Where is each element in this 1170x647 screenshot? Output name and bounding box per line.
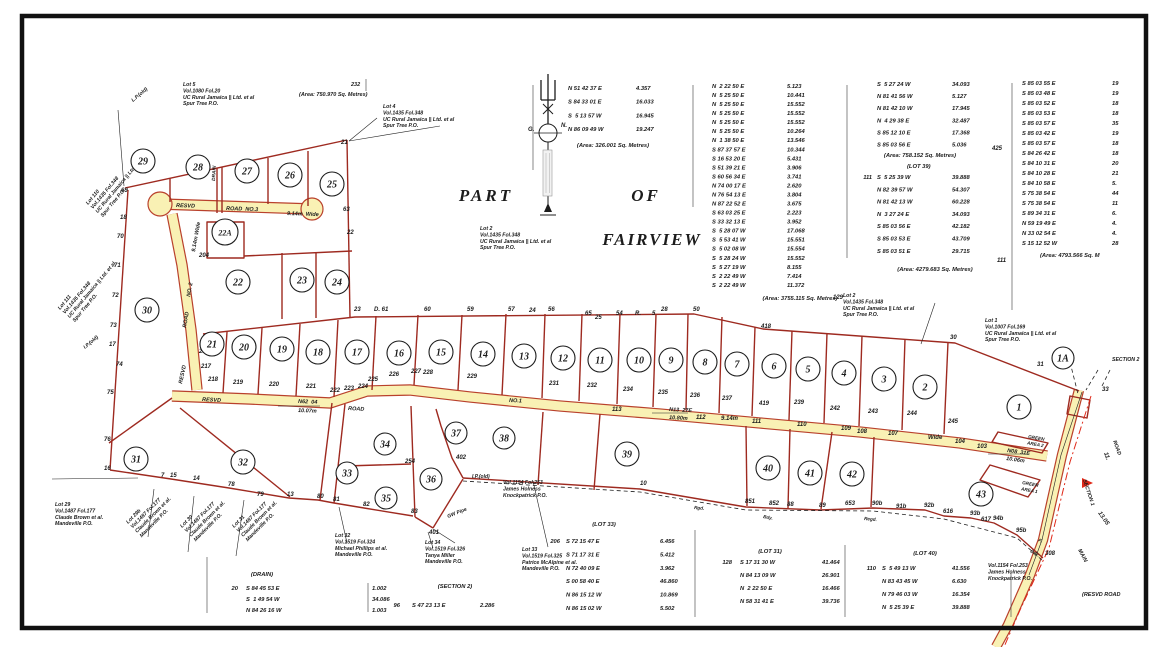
bearing-value: S 5 25 39 W bbox=[877, 175, 911, 181]
boundary-point-number: 235 bbox=[657, 390, 669, 396]
lot-circle-43: 43 bbox=[969, 482, 993, 506]
parcel-boundary-line bbox=[463, 478, 1043, 558]
bearing-value: S 51 39 21 E bbox=[712, 165, 747, 171]
bearing-table-traverse-b2: 111S 5 25 39 W39.888N 82 39 57 W54.307N … bbox=[863, 175, 973, 273]
boundary-point-number: 111 bbox=[997, 258, 1007, 264]
lot-number: 6 bbox=[772, 362, 777, 373]
lot-number: 1A bbox=[1057, 354, 1069, 365]
distance-value: 3.952 bbox=[787, 220, 802, 226]
table-title: (DRAIN) bbox=[251, 572, 273, 578]
distance-value: 17.068 bbox=[787, 229, 806, 235]
distance-value: 6. bbox=[1112, 211, 1117, 217]
boundary-point-number: 228 bbox=[422, 370, 434, 376]
north-arrow-icon bbox=[534, 74, 562, 215]
distance-value: 15.554 bbox=[787, 247, 806, 253]
bearing-value: N 5 25 50 E bbox=[712, 111, 745, 117]
distance-value: 16.033 bbox=[636, 100, 655, 106]
parcel-boundary-line bbox=[347, 140, 350, 318]
lot-circle-28: 28 bbox=[186, 155, 210, 179]
bearing-value: S 5 28 07 W bbox=[712, 229, 746, 235]
distance-value: 2.286 bbox=[479, 603, 495, 609]
boundary-point-number: 852 bbox=[769, 501, 780, 507]
distance-value: 29.715 bbox=[951, 249, 971, 255]
boundary-point-number: 104 bbox=[955, 439, 966, 445]
parcel-boundary-line bbox=[109, 398, 172, 443]
lot-circle-22: 22 bbox=[226, 270, 250, 294]
bearing-value: S 00 58 40 E bbox=[566, 579, 601, 585]
bearing-value: N 3 27 24 E bbox=[877, 212, 910, 218]
lot-circle-17: 17 bbox=[345, 340, 369, 364]
lot-circle-39: 39 bbox=[615, 442, 639, 466]
boundary-point-number: 217 bbox=[200, 364, 212, 370]
owner-label-line: Vol.1154 Fol.253 bbox=[503, 480, 543, 486]
lot-number: 36 bbox=[425, 475, 436, 486]
owner-label-line: Vol.1519 Fol.324 bbox=[335, 539, 375, 545]
lot-circle-35: 35 bbox=[375, 487, 397, 509]
lot-number: 9 bbox=[669, 356, 674, 367]
boundary-point-number: 129 bbox=[833, 295, 844, 301]
boundary-point-number: 234 bbox=[622, 387, 634, 393]
lot-number: 14 bbox=[478, 350, 488, 361]
owner-label-line: Knockpatrick P.O. bbox=[503, 493, 547, 499]
owner-label-line: Lot 33 bbox=[522, 547, 537, 553]
owner-label-holness-bottom: Vol.1154 Fol.253James HolnessKnockpatric… bbox=[988, 563, 1032, 582]
lot-circle-19: 19 bbox=[270, 337, 294, 361]
lot-circle-15: 15 bbox=[429, 340, 453, 364]
lot-number: 41 bbox=[804, 469, 815, 480]
owner-label-lot2-right: Lot 2Vol.1435 Fol.348UC Rural Jamaica ||… bbox=[843, 293, 915, 318]
lot-number: 15 bbox=[436, 348, 446, 359]
owner-label-green-area-2: GREENAREA 2 bbox=[1026, 434, 1046, 448]
lot-number: 18 bbox=[313, 348, 323, 359]
parcel-boundary-line bbox=[686, 314, 688, 410]
road-name-label: ROAD NO.3 bbox=[226, 206, 258, 213]
lot-number: 17 bbox=[352, 348, 363, 359]
distance-value: 19 bbox=[1112, 131, 1119, 137]
lot-circle-7: 7 bbox=[725, 352, 749, 376]
owner-label-line: Spur Tree P.O. bbox=[985, 337, 1020, 343]
boundary-point-number: 15 bbox=[170, 473, 177, 479]
bearing-table-traverse-c: S 85 03 55 E19S 85 03 48 E19S 85 03 52 E… bbox=[1022, 81, 1119, 259]
bearing-value: S 16 53 20 E bbox=[712, 156, 747, 162]
table-title: (LOT 31) bbox=[758, 549, 782, 555]
bearing-value: S 85 03 56 E bbox=[877, 224, 912, 230]
distance-value: 10.264 bbox=[787, 129, 806, 135]
map-annotation-label: (LOT 39) bbox=[907, 164, 931, 170]
owner-label-line: Vol.1154 Fol.253 bbox=[988, 563, 1028, 569]
red-dimension-label: 11. bbox=[1102, 452, 1110, 462]
boundary-point-number: 653 bbox=[845, 501, 856, 507]
road-name-label: 9.14m Wide bbox=[287, 211, 319, 218]
bearing-value: S 5 27 19 W bbox=[712, 265, 746, 271]
bearing-value: S 87 37 57 E bbox=[712, 147, 747, 153]
lot-circle-38: 38 bbox=[493, 427, 515, 449]
boundary-point-number: 79 bbox=[257, 492, 264, 498]
bearing-value: S 75 38 54 E bbox=[1022, 201, 1057, 207]
lot-number: 35 bbox=[380, 494, 391, 505]
owner-label-lot30-diag: Lot 30Vol.1487 Fol.177Claude Brown et al… bbox=[179, 491, 231, 543]
distance-value: 4. bbox=[1111, 221, 1117, 227]
table-title: (LOT 33) bbox=[592, 522, 616, 528]
lot-number: 3 bbox=[881, 375, 887, 386]
distance-value: 5.431 bbox=[787, 156, 802, 162]
lot-circle-22A: 22A bbox=[212, 219, 238, 245]
boundary-point-number: 239 bbox=[793, 400, 805, 406]
boundary-point-number: 107 bbox=[888, 431, 899, 437]
bearing-value: S 85 03 57 E bbox=[1022, 121, 1057, 127]
parcel-boundary-line bbox=[110, 190, 128, 470]
parcel-boundary-line bbox=[752, 327, 755, 416]
lot-circle-24: 24 bbox=[325, 270, 349, 294]
map-annotation-label: 232 bbox=[350, 82, 360, 88]
road-name-label: RESVD bbox=[202, 397, 221, 404]
owner-label-lot32-owner: Lot 32Vol.1519 Fol.324Michael Phillips e… bbox=[335, 533, 387, 558]
boundary-point-number: 69 bbox=[121, 188, 128, 194]
lot-circle-29: 29 bbox=[131, 149, 155, 173]
boundary-point-number: 70 bbox=[117, 234, 124, 240]
boundary-point-number: 219 bbox=[232, 380, 244, 386]
owner-label-line: Spur Tree P.O. bbox=[183, 101, 218, 107]
boundary-point-number: 617 bbox=[981, 517, 992, 523]
distance-value: 6.630 bbox=[952, 579, 967, 585]
bearing-value: N 5 25 50 E bbox=[712, 93, 745, 99]
distance-value: 5.127 bbox=[952, 94, 967, 100]
bearing-table-lot31: (LOT 31)128S 17 31 30 W41.464N 84 13 09 … bbox=[722, 549, 840, 605]
boundary-point-number: 60 bbox=[424, 307, 431, 313]
boundary-point-number: 95b bbox=[1016, 528, 1027, 534]
lot-circle-20: 20 bbox=[232, 335, 256, 359]
lot-number: 13 bbox=[519, 352, 529, 363]
boundary-point-number: 82 bbox=[363, 502, 370, 508]
map-annotation-label: MAIN bbox=[1076, 548, 1088, 564]
boundary-point-number: 92b bbox=[924, 503, 935, 509]
lot-circle-30: 30 bbox=[135, 298, 159, 322]
owner-label-line: James Holness bbox=[503, 486, 541, 492]
boundary-point-number: 71 bbox=[114, 263, 121, 269]
boundary-point-number: 93b bbox=[970, 511, 981, 517]
boundary-point-number: 221 bbox=[305, 384, 317, 390]
boundary-point-number: Wide bbox=[928, 435, 943, 441]
distance-value: 1.003 bbox=[372, 608, 387, 614]
bearing-value: N 59 19 49 E bbox=[1022, 221, 1057, 227]
bearing-value: N 81 42 10 W bbox=[877, 106, 913, 112]
lot-circle-3: 3 bbox=[872, 367, 896, 391]
map-annotation-label: SECTION 2 bbox=[1112, 357, 1139, 363]
boundary-point-number: 94b bbox=[993, 516, 1004, 522]
distance-value: 6.456 bbox=[660, 539, 675, 545]
owner-label-green-area-1: GREENAREA 1 bbox=[1020, 480, 1040, 494]
bearing-value: S 89 34 31 E bbox=[1022, 211, 1057, 217]
owner-label-line: Vol.1435 Fol.348 bbox=[383, 110, 423, 116]
distance-value: 16.354 bbox=[952, 592, 971, 598]
distance-value: 4. bbox=[1111, 231, 1117, 237]
lot-circle-33: 33 bbox=[336, 462, 358, 484]
owner-label-line: UC Rural Jamaica || Ltd. et al bbox=[843, 306, 915, 312]
owner-label-lot111: Lot 111Vol.1435 Fol.348UC Rural Jamaica … bbox=[57, 252, 122, 323]
parcel-boundary-line bbox=[902, 339, 905, 430]
boundary-point-number: 22 bbox=[346, 230, 354, 236]
registered-boundary-dashes bbox=[1086, 370, 1098, 390]
distance-value: 60.228 bbox=[952, 200, 971, 206]
parcel-boundary-line bbox=[125, 140, 347, 188]
grid-north-g-label: G. bbox=[528, 127, 535, 133]
lot-circle-25: 25 bbox=[320, 172, 344, 196]
boundary-point-number: 74 bbox=[116, 362, 123, 368]
bearing-value: S 85 03 57 E bbox=[1022, 141, 1057, 147]
owner-label-line: Vol.1007 Fol.169 bbox=[985, 324, 1025, 330]
lot-circle-40: 40 bbox=[756, 456, 780, 480]
owner-label-line: Lot 1 bbox=[985, 318, 998, 324]
survey-plan-sheet: N 51 42 37 E4.357S 84 33 01 E16.033S 5 1… bbox=[0, 0, 1170, 647]
boundary-point-number: 402 bbox=[455, 455, 467, 461]
lot-number: 43 bbox=[975, 490, 986, 501]
lot-circle-10: 10 bbox=[627, 348, 651, 372]
boundary-point-number: 78 bbox=[228, 482, 235, 488]
bearing-value: S 2 22 49 W bbox=[712, 274, 746, 280]
boundary-point-number: 232 bbox=[586, 383, 598, 389]
distance-value: 20 bbox=[1111, 161, 1119, 167]
distance-value: 28 bbox=[1111, 241, 1119, 247]
lot-circle-26: 26 bbox=[278, 163, 302, 187]
boundary-point-number: 231 bbox=[548, 381, 560, 387]
bearing-value: N 79 46 03 W bbox=[882, 592, 918, 598]
lot-circle-14: 14 bbox=[471, 342, 495, 366]
lot-number: 8 bbox=[703, 358, 708, 369]
road-surface bbox=[996, 390, 1079, 647]
distance-value: 15.551 bbox=[787, 238, 805, 244]
lot-number: 12 bbox=[558, 354, 568, 365]
table-title: (LOT 40) bbox=[913, 551, 937, 557]
road-name-label: 10.80m bbox=[669, 415, 688, 422]
bearing-value: S 17 31 30 W bbox=[740, 560, 776, 566]
bearing-table-lot40: (LOT 40)110S 5 49 13 W41.556N 83 43 45 W… bbox=[867, 551, 971, 611]
bearing-value: S 85 12 10 E bbox=[877, 130, 912, 136]
boundary-point-number: 226 bbox=[388, 372, 400, 378]
parcel-boundary-line bbox=[334, 404, 345, 503]
bearing-table-traverse-b1: S 5 27 24 W34.093N 81 41 56 W5.127N 81 4… bbox=[877, 82, 971, 159]
distance-value: 5.036 bbox=[952, 143, 967, 149]
bearing-value: S 71 17 31 E bbox=[566, 552, 601, 558]
bearing-value: N 86 09 49 W bbox=[568, 127, 604, 133]
bearing-value: S 5 02 08 W bbox=[712, 247, 746, 253]
boundary-point-number: 72 bbox=[112, 293, 119, 299]
lot-number: 23 bbox=[296, 276, 307, 287]
boundary-point-number: 18 bbox=[120, 215, 127, 221]
distance-value: 18 bbox=[1112, 151, 1119, 157]
distance-value: 11 bbox=[1112, 201, 1118, 207]
boundary-point-number: 73 bbox=[110, 323, 117, 329]
distance-value: 17.368 bbox=[952, 130, 971, 136]
lot-number: 20 bbox=[238, 343, 249, 354]
lot-number: 16 bbox=[394, 349, 404, 360]
leader-line bbox=[52, 478, 138, 479]
map-annotation-label: (Area: 750.970 Sq. Metres) bbox=[299, 92, 368, 98]
lot-number: 39 bbox=[621, 450, 632, 461]
boundary-point-number: 63 bbox=[343, 207, 350, 213]
bearing-value: S 63 03 25 E bbox=[712, 211, 747, 217]
distance-value: 3.741 bbox=[787, 174, 802, 180]
lot-number: 22 bbox=[232, 278, 243, 289]
boundary-point-number: 113 bbox=[612, 407, 622, 413]
lot-number: 31 bbox=[130, 455, 141, 466]
lot-circle-1A: 1A bbox=[1052, 347, 1074, 369]
owner-label-line: Spur Tree P.O. bbox=[480, 245, 515, 251]
boundary-point-number: 14 bbox=[193, 476, 200, 482]
parcel-boundary-line bbox=[542, 314, 545, 398]
parcel-boundary-line bbox=[258, 328, 262, 394]
bearing-value: S 85 03 53 E bbox=[1022, 111, 1057, 117]
lot-number: 11 bbox=[595, 356, 604, 367]
map-annotation-label: I.P.(old) bbox=[82, 334, 100, 350]
bearing-value: N 84 26 16 W bbox=[246, 608, 282, 614]
bearing-value: S 5 49 13 W bbox=[882, 566, 916, 572]
distance-value: 2.620 bbox=[786, 183, 802, 189]
boundary-point-number: 83 bbox=[411, 509, 418, 515]
lot-circle-1: 1 bbox=[1007, 395, 1031, 419]
parcel-boundary-line bbox=[502, 314, 506, 395]
bearing-value: N 87 22 52 E bbox=[712, 202, 747, 208]
lot-number: 26 bbox=[284, 171, 295, 182]
distance-value: 41.464 bbox=[821, 560, 841, 566]
distance-value: 15.552 bbox=[787, 256, 806, 262]
bearing-value: N 2 22 50 E bbox=[740, 586, 773, 592]
lot-circle-21: 21 bbox=[200, 332, 224, 356]
boundary-point-number: 224 bbox=[357, 384, 369, 390]
bearing-value: S 5 53 41 W bbox=[712, 238, 746, 244]
bearing-value: S 60 56 34 E bbox=[712, 174, 747, 180]
distance-value: 54.307 bbox=[952, 187, 971, 193]
boundary-point-number: D. 61 bbox=[374, 307, 389, 313]
lot-circle-34: 34 bbox=[374, 433, 396, 455]
owner-label-line: Michael Phillips et al. bbox=[335, 546, 387, 552]
bearing-value: N 76 54 13 E bbox=[712, 192, 747, 198]
parcel-boundary-line bbox=[617, 314, 620, 404]
distance-value: 8.155 bbox=[787, 265, 802, 271]
boundary-point-number: 56 bbox=[548, 307, 555, 313]
surveyor-stamp bbox=[543, 150, 552, 196]
distance-value: 3.962 bbox=[660, 566, 675, 572]
lot-number: 24 bbox=[331, 278, 342, 289]
lot-circle-4: 4 bbox=[832, 361, 856, 385]
owner-label-lot1-right: Lot 1Vol.1007 Fol.169UC Rural Jamaica ||… bbox=[985, 318, 1057, 343]
boundary-point-number: 65 bbox=[585, 311, 592, 317]
lot-number: 2 bbox=[922, 383, 928, 394]
bearing-value: S 85 03 42 E bbox=[1022, 131, 1057, 137]
distance-value: 43.709 bbox=[951, 237, 971, 243]
bearing-value: N 4 29 38 E bbox=[877, 118, 910, 124]
boundary-point-number: 28 bbox=[660, 307, 668, 313]
bearing-value: N 83 43 45 W bbox=[882, 579, 918, 585]
bearing-value: N 33 02 54 E bbox=[1022, 231, 1057, 237]
lot-number: 30 bbox=[141, 306, 152, 317]
area-value: (Area: 4793.566 Sq. M bbox=[1040, 253, 1100, 259]
distance-value: 3.906 bbox=[787, 165, 802, 171]
distance-value: 26.901 bbox=[821, 573, 840, 579]
map-title-part: PART bbox=[458, 186, 513, 205]
boundary-point-number: 401 bbox=[428, 530, 440, 536]
road-name-label: N62 04 bbox=[298, 399, 317, 406]
bearing-value: S 72 15 47 E bbox=[566, 539, 601, 545]
boundary-point-number: 57 bbox=[508, 307, 515, 313]
lot-number: 28 bbox=[192, 163, 203, 174]
owner-label-line: Mandeville P.O. bbox=[425, 559, 463, 565]
distance-value: 32.487 bbox=[952, 118, 971, 124]
boundary-point-number: 31 bbox=[1037, 362, 1044, 368]
road-name-label: RESVD bbox=[178, 365, 188, 385]
parcel-boundary-line bbox=[653, 314, 656, 407]
lot-number: 10 bbox=[634, 356, 644, 367]
distance-value: 18 bbox=[1112, 101, 1119, 107]
owner-label-lot29b-diag: Lot 29bVol.1487 Fol.177Claude Brown et a… bbox=[125, 487, 177, 539]
bearing-value: N 5 25 39 E bbox=[882, 605, 915, 611]
road-name-label: NO. 2 bbox=[186, 282, 194, 297]
map-annotation-label: I.P.(old) bbox=[472, 474, 490, 480]
lot-number: 42 bbox=[846, 470, 857, 481]
boundary-point-number: 90b bbox=[872, 501, 883, 507]
lot-circle-6: 6 bbox=[762, 354, 786, 378]
map-annotation-label: L.P.(old) bbox=[130, 86, 149, 103]
area-value: (Area: 4279.683 Sq. Metres) bbox=[897, 267, 972, 273]
bearing-value: S 85 03 51 E bbox=[877, 249, 912, 255]
owner-label-line: Vol.1519 Fol.326 bbox=[425, 546, 465, 552]
bearing-table-traverse-a: N 2 22 50 E5.123N 5 25 50 E10.441N 5 25 … bbox=[712, 84, 838, 302]
lot-circle-9: 9 bbox=[659, 348, 683, 372]
bearing-value: S 84 33 01 E bbox=[568, 100, 603, 106]
area-value: (Area: 326.001 Sq. Metres) bbox=[577, 143, 649, 149]
parcel-boundary-line bbox=[334, 320, 338, 397]
map-annotation-label: Rgd. bbox=[694, 505, 705, 511]
owner-label-line: Lot 34 bbox=[425, 540, 440, 546]
distance-value: 46.860 bbox=[659, 579, 679, 585]
bearing-value: S 85 03 56 E bbox=[877, 143, 912, 149]
boundary-point-number: 110 bbox=[797, 422, 807, 428]
station-number: 110 bbox=[867, 566, 877, 572]
owner-label-line: Vol.1519 Fol.325 bbox=[522, 553, 562, 559]
boundary-point-number: 108 bbox=[857, 429, 868, 435]
boundary-point-number: 13 bbox=[287, 492, 294, 498]
owner-label-line: Lot 5 bbox=[183, 82, 196, 88]
map-annotation-label: ROAD bbox=[1111, 440, 1122, 457]
map-annotation-label: SECTION 1 bbox=[1081, 479, 1095, 507]
distance-value: 39.888 bbox=[952, 605, 971, 611]
boundary-point-number: 21 bbox=[340, 140, 348, 146]
parcel-boundary-line bbox=[821, 432, 832, 509]
distance-value: 13.546 bbox=[787, 138, 806, 144]
owner-label-line: Vol.1435 Fol.348 bbox=[843, 299, 883, 305]
bearing-value: S 84 45 53 E bbox=[246, 586, 281, 592]
distance-value: 11.372 bbox=[787, 283, 805, 289]
lot-number: 4 bbox=[841, 369, 847, 380]
distance-value: 5. bbox=[1112, 181, 1117, 187]
owner-label-line: UC Rural Jamaica || Ltd. et al bbox=[985, 331, 1057, 337]
boundary-point-number: 236 bbox=[689, 393, 701, 399]
boundary-point-number: 9.14m bbox=[721, 416, 739, 422]
owner-label-line: Lot 2 bbox=[843, 293, 856, 299]
distance-value: 18 bbox=[1112, 111, 1119, 117]
boundary-point-number: 91b bbox=[896, 504, 907, 510]
owner-label-line: Knockpatrick P.O. bbox=[988, 576, 1032, 582]
owner-label-lot4: Lot 4Vol.1435 Fol.348UC Rural Jamaica ||… bbox=[383, 104, 455, 129]
bearing-value: S 85 03 52 E bbox=[1022, 101, 1057, 107]
distance-value: 34.086 bbox=[372, 597, 391, 603]
distance-value: 34.093 bbox=[952, 212, 971, 218]
owner-label-line: James Holness bbox=[988, 569, 1026, 575]
bearing-value: S 85 03 48 E bbox=[1022, 91, 1057, 97]
distance-value: 10.869 bbox=[660, 593, 679, 599]
bearing-value: S 5 28 24 W bbox=[712, 256, 746, 262]
boundary-point-number: 237 bbox=[721, 396, 733, 402]
distance-value: 34.093 bbox=[952, 82, 971, 88]
